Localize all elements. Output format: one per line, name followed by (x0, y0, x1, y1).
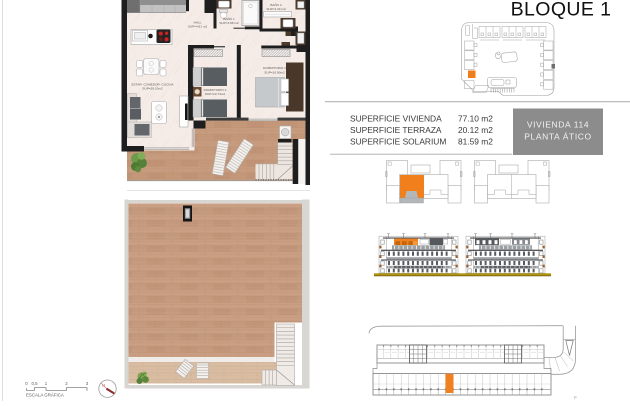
svg-text:20.12 m2: 20.12 m2 (458, 125, 493, 135)
svg-text:SUPERFICIE VIVIENDA: SUPERFICIE VIVIENDA (350, 114, 442, 124)
svg-text:PLANTA ÁTICO: PLANTA ÁTICO (524, 132, 592, 142)
svg-text:SUP=10.74m2: SUP=10.74m2 (205, 92, 225, 96)
svg-text:SUPERFICIE SOLARIUM: SUPERFICIE SOLARIUM (350, 137, 446, 147)
svg-text:SUP=3.88 m2: SUP=3.88 m2 (219, 21, 239, 25)
svg-text:81.59 m2: 81.59 m2 (458, 137, 493, 147)
svg-text:SUP=10.90m2: SUP=10.90m2 (264, 70, 284, 74)
svg-text:ESCALA GRÁFICA: ESCALA GRÁFICA (26, 393, 64, 398)
svg-text:SUPERFICIE TERRAZA: SUPERFICIE TERRAZA (350, 125, 442, 135)
svg-text:P: P (574, 395, 577, 400)
svg-text:SUP=4.81 m2: SUP=4.81 m2 (188, 24, 208, 28)
svg-text:0,5: 0,5 (31, 381, 38, 386)
svg-text:VIVIENDA 114: VIVIENDA 114 (527, 120, 589, 130)
svg-text:SUP=26.10m2: SUP=26.10m2 (142, 86, 162, 90)
svg-text:77.10 m2: 77.10 m2 (458, 114, 493, 124)
svg-text:SUP=4.29 m2: SUP=4.29 m2 (266, 7, 286, 11)
svg-text:BLOQUE 1: BLOQUE 1 (511, 0, 612, 21)
